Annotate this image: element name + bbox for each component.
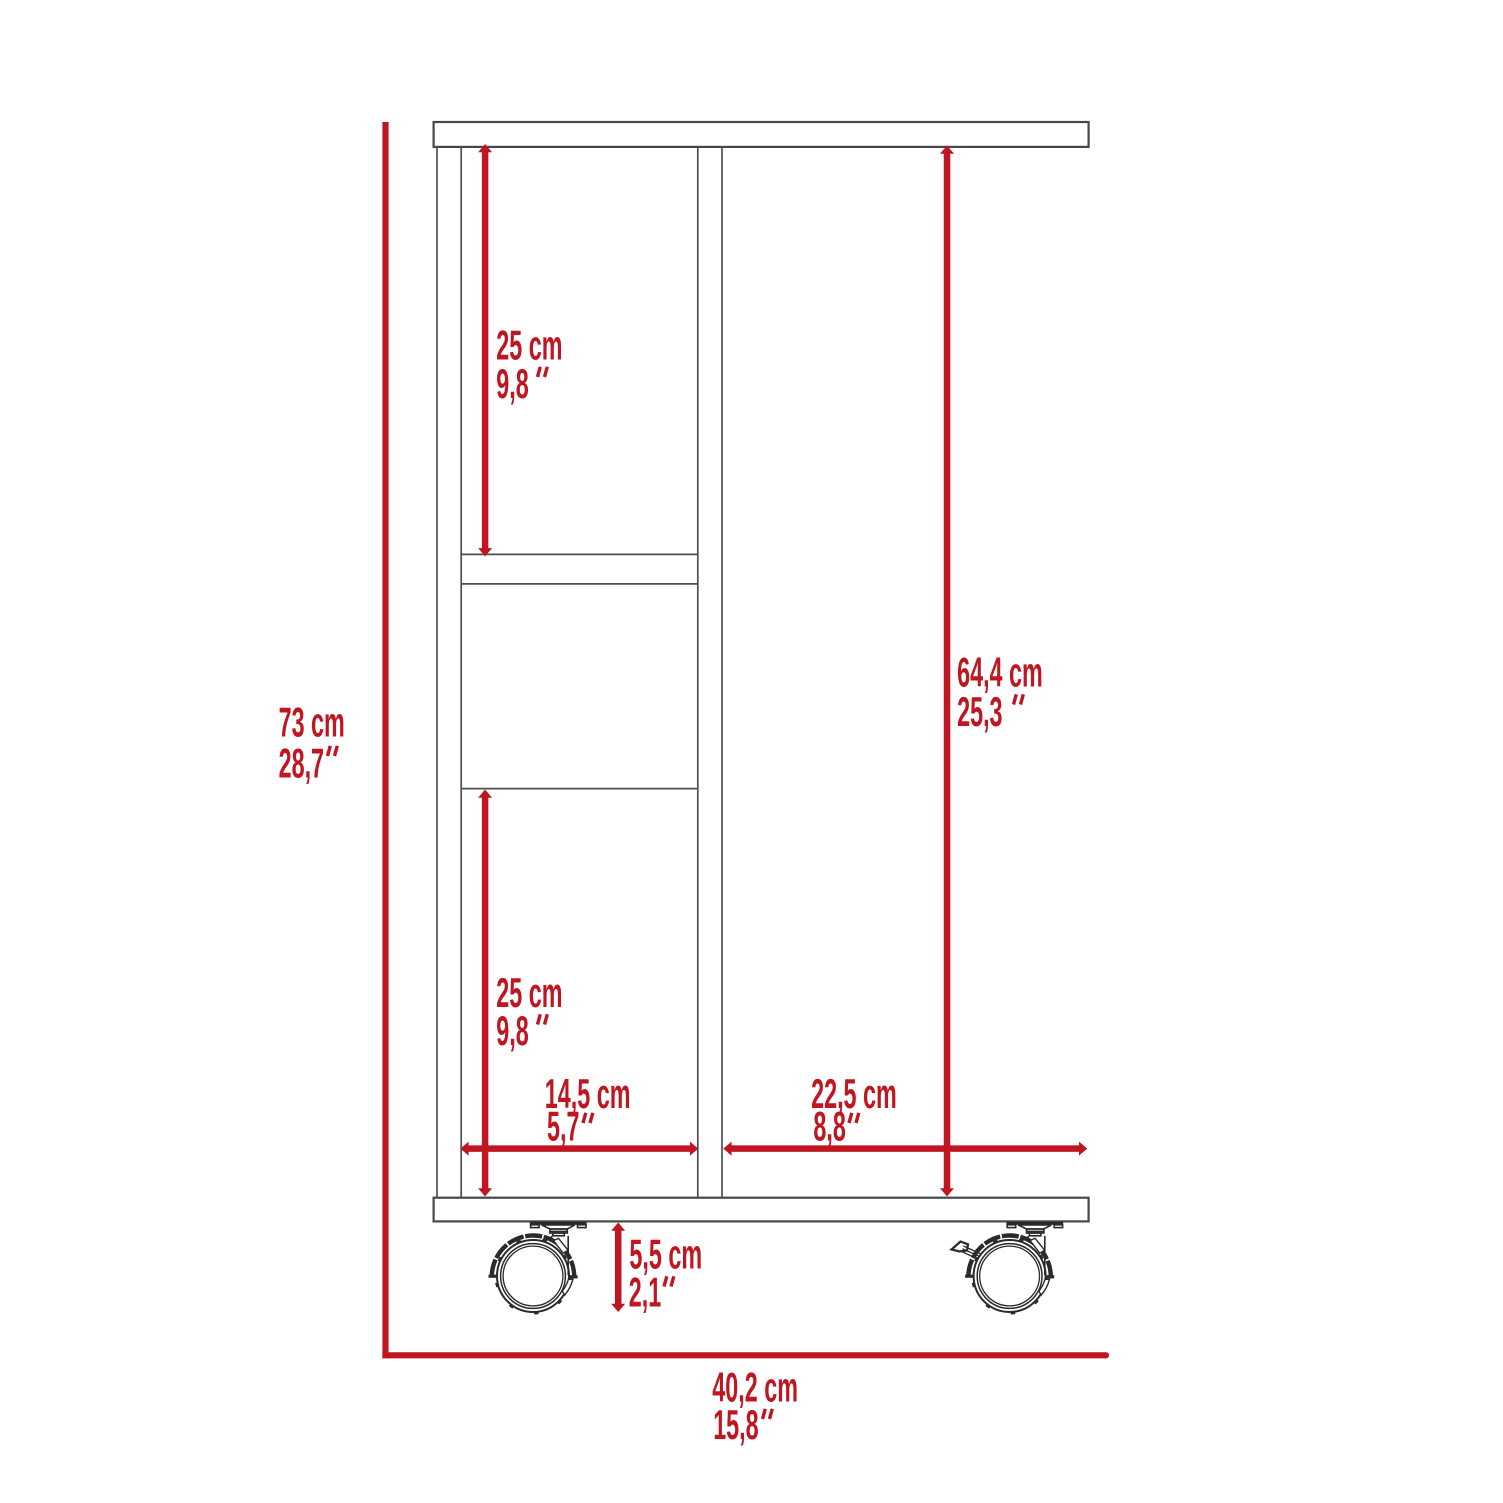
svg-text:15,8: 15,8: [713, 1402, 758, 1449]
svg-text:5,7: 5,7: [547, 1103, 579, 1150]
svg-text:9,8: 9,8: [496, 1008, 528, 1055]
svg-text:73 cm: 73 cm: [279, 699, 345, 746]
svg-text:8,8: 8,8: [813, 1103, 845, 1150]
svg-text:25,3: 25,3: [957, 689, 1002, 736]
svg-text:9,8: 9,8: [496, 361, 528, 408]
svg-text:28,7: 28,7: [279, 740, 324, 787]
svg-text:2,1: 2,1: [629, 1270, 661, 1317]
